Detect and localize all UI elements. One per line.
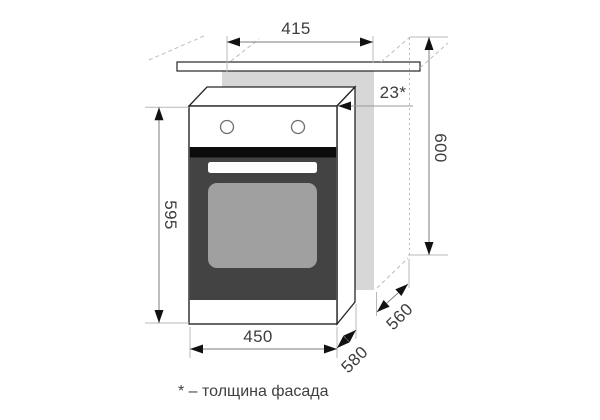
dim-label-oven-width: 450 — [243, 327, 273, 347]
oven-installation-drawing — [0, 0, 600, 420]
knob-left — [221, 121, 234, 134]
dim-label-cabinet-height: 600 — [430, 133, 450, 163]
diagram-canvas: 415 23* 600 595 450 580 560 * – толщина … — [0, 0, 600, 420]
oven-side-face — [337, 87, 355, 324]
door-handle — [208, 162, 317, 173]
dim-label-niche-width: 415 — [281, 19, 311, 39]
door-gap-band — [190, 147, 336, 158]
countertop — [177, 62, 420, 71]
dim-label-facade-thickness: 23* — [380, 83, 407, 103]
oven-top-face — [189, 87, 355, 106]
footnote: * – толщина фасада — [178, 383, 329, 401]
dim-label-oven-height: 595 — [160, 200, 180, 230]
knob-right — [292, 121, 305, 134]
door-window — [208, 183, 317, 268]
